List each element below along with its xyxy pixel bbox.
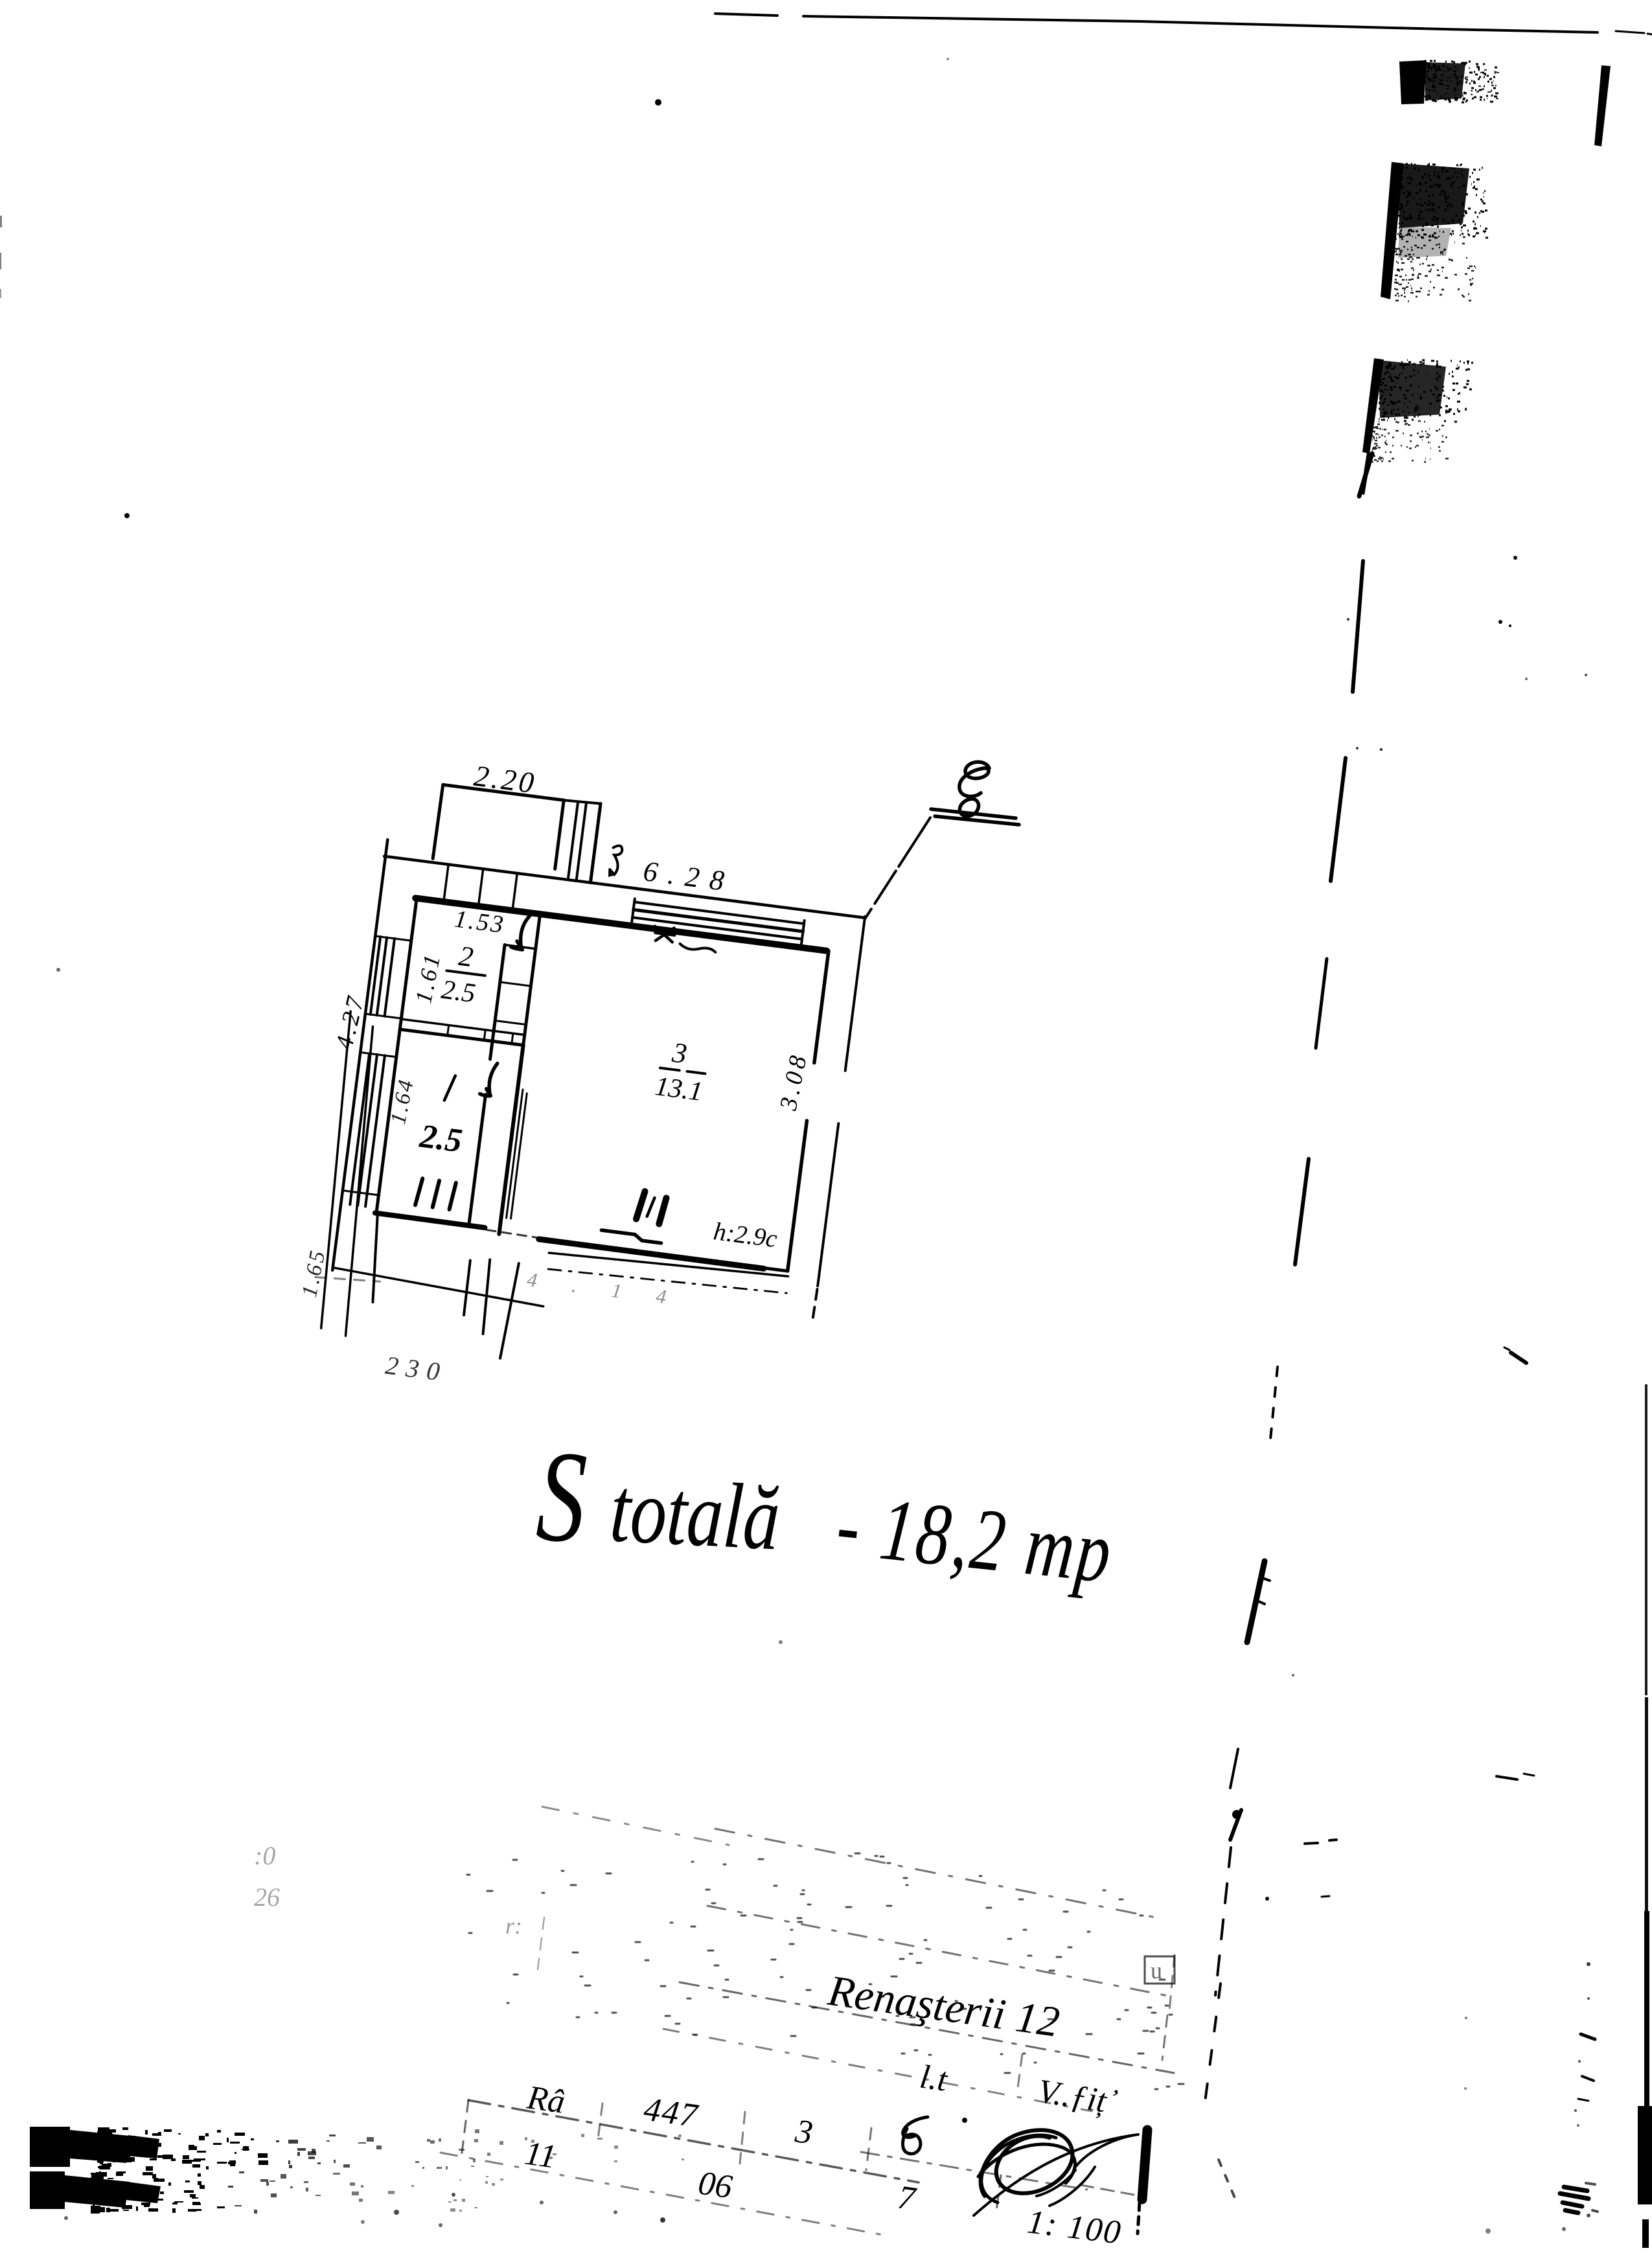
svg-text:447: 447	[641, 2090, 700, 2134]
svg-text:l.t: l.t	[917, 2058, 950, 2098]
svg-text:h:2.9c: h:2.9c	[712, 1217, 779, 1253]
svg-text:1.53: 1.53	[453, 905, 507, 939]
svg-text:2: 2	[457, 940, 475, 973]
svg-text:1.64: 1.64	[386, 1076, 419, 1126]
svg-text:06: 06	[696, 2164, 734, 2206]
svg-text:u: u	[1151, 1958, 1162, 1984]
svg-text:230: 230	[384, 1351, 449, 1388]
svg-text:Râ: Râ	[524, 2079, 567, 2121]
svg-text::0: :0	[254, 1841, 275, 1870]
svg-text:26: 26	[254, 1883, 280, 1912]
svg-text:7: 7	[895, 2179, 919, 2217]
svg-text:Renaşterii 12: Renaşterii 12	[825, 1966, 1062, 2046]
svg-text:2.20: 2.20	[472, 759, 538, 800]
svg-text:r:: r:	[505, 1913, 522, 1939]
svg-text:3: 3	[670, 1036, 689, 1070]
svg-text:2.5: 2.5	[440, 975, 477, 1009]
svg-text:totală: totală	[608, 1458, 782, 1570]
svg-text:3: 3	[792, 2112, 815, 2151]
svg-text:S: S	[534, 1423, 590, 1571]
svg-text:V..ƒiț᾽: V..ƒiț᾽	[1035, 2073, 1120, 2122]
svg-text:4.14: 4.14	[526, 1268, 703, 1312]
svg-text:3.08: 3.08	[775, 1049, 813, 1113]
svg-text:- 18,2 mp: - 18,2 mp	[832, 1476, 1118, 1602]
svg-text:1: 100: 1: 100	[1026, 2203, 1124, 2251]
svg-text:13.1: 13.1	[653, 1071, 704, 1107]
svg-text:4.27: 4.27	[330, 991, 370, 1052]
svg-text:2.5: 2.5	[417, 1117, 465, 1160]
svg-text:11: 11	[522, 2134, 558, 2175]
